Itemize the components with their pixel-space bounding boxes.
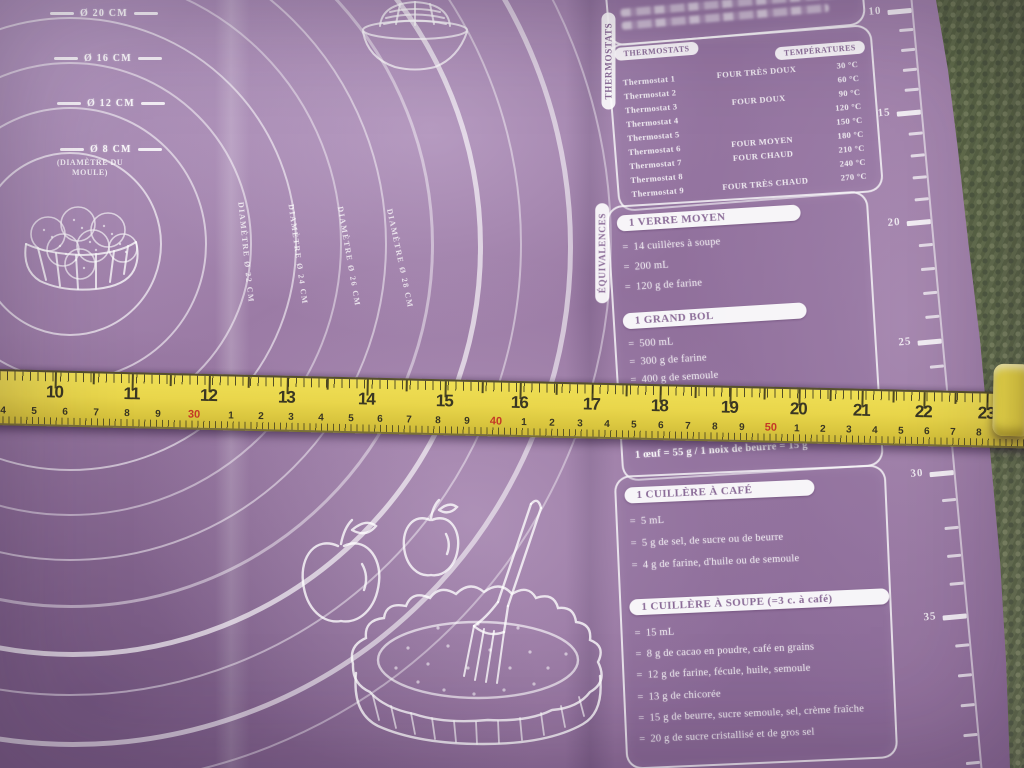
brioche-drawing — [8, 182, 158, 297]
tape-bottom-number: 7 — [406, 414, 412, 425]
list-item-text: 15 g de beurre, sucre semoule, sel, crèm… — [649, 702, 864, 726]
ruler-tick — [947, 554, 961, 558]
verre-moyen-title-pill: 1 VERRE MOYEN — [616, 204, 801, 231]
ruler-tick — [901, 48, 915, 52]
ruler-tick: 30 — [929, 470, 953, 477]
list-item: = 15 g de beurre, sucre semoule, sel, cr… — [638, 701, 888, 726]
list-item-text: 14 cuillères à soupe — [633, 235, 721, 254]
ruler-tick — [930, 364, 944, 368]
photo-scene: Ø 20 CMØ 16 CMØ 12 CMØ 8 CM (DIAMÈTRE DU… — [0, 0, 1024, 768]
list-item-text: 300 g de farine — [640, 352, 707, 370]
cuillere-cafe-title-pill: 1 CUILLÈRE À CAFÉ — [624, 479, 815, 503]
mould-diameter-note: (DIAMÈTRE DU MOULE) — [44, 158, 136, 177]
tape-cm-number: 13 — [278, 387, 295, 407]
tape-cm-number: 11 — [123, 384, 139, 404]
ruler-line — [910, 0, 984, 768]
ruler-tick — [966, 761, 980, 765]
ruler-tick: 25 — [917, 339, 941, 346]
grand-bol-title-pill: 1 GRAND BOL — [622, 302, 807, 329]
ruler-tick — [913, 175, 927, 179]
list-item-text: 200 mL — [634, 259, 669, 275]
equals-marker-icon: = — [630, 537, 637, 551]
ruler-number: 20 — [887, 216, 901, 229]
tape-bottom-number: 30 — [188, 408, 201, 420]
tape-bottom-number: 6 — [377, 414, 383, 425]
bowl-drawing — [330, 0, 500, 72]
tape-cm-tick — [626, 385, 628, 396]
equivalences-tab: ÉQUIVALENCES — [595, 203, 609, 303]
ruler-tick — [915, 197, 929, 201]
equals-marker-icon: = — [623, 261, 630, 276]
list-item-text: 8 g de cacao en poudre, café en grains — [646, 641, 814, 662]
tape-cm-tick — [248, 377, 250, 388]
list-item: = 8 g de cacao en poudre, café en grains — [635, 638, 885, 663]
tape-bottom-number: 2 — [549, 418, 555, 429]
cuillere-cafe-list: = 5 mL = 5 g de sel, de sucre ou de beur… — [629, 505, 882, 582]
list-item-text: 4 g de farine, d'huile ou de semoule — [643, 552, 800, 573]
tape-cm-tick — [892, 391, 894, 402]
list-item: = 12 g de farine, fécule, huile, semoule — [636, 659, 886, 684]
tape-bottom-number: 7 — [93, 407, 99, 418]
circle-diameter-label: Ø 8 CM — [60, 144, 162, 155]
ruler-tick — [905, 88, 919, 92]
tape-bottom-number: 6 — [924, 426, 930, 437]
equals-marker-icon: = — [634, 627, 641, 641]
tape-cm-number: 16 — [511, 393, 528, 413]
tape-cm-number: 18 — [651, 396, 668, 416]
list-item: = 13 g de chicorée — [637, 680, 887, 705]
ruler-tick — [944, 526, 958, 530]
tape-cm-tick — [93, 373, 95, 384]
grand-bol-list: = 500 mL = 300 g de farine = 400 g de se… — [628, 324, 871, 393]
tape-bottom-number: 8 — [712, 421, 718, 432]
tape-cm-tick — [764, 389, 766, 400]
tape-bottom-number: 4 — [604, 419, 610, 430]
tape-bottom-number: 5 — [31, 406, 37, 417]
tape-bottom-number: 6 — [62, 407, 68, 418]
circle-diameter-label: Ø 20 CM — [50, 8, 158, 19]
spoons-box: 1 CUILLÈRE À CAFÉ = 5 mL = 5 g de sel, d… — [614, 464, 899, 768]
equals-marker-icon: = — [622, 241, 629, 256]
tape-bottom-number: 4 — [318, 412, 324, 423]
list-item-text: 12 g de farine, fécule, huile, semoule — [647, 662, 810, 683]
tape-cm-tick — [829, 390, 831, 401]
ruler-number: 10 — [868, 5, 882, 18]
ruler-tick — [925, 315, 939, 319]
tape-cm-tick — [556, 384, 558, 395]
tape-bottom-number: 5 — [348, 413, 354, 424]
tape-bottom-number: 3 — [288, 412, 294, 423]
tape-cm-number: 10 — [46, 382, 63, 402]
tape-bottom-number: 7 — [950, 427, 956, 438]
tape-bottom-number: 40 — [490, 415, 503, 427]
tape-cm-tick — [406, 380, 408, 391]
tape-cm-number: 19 — [721, 398, 738, 418]
oven-level-label — [709, 124, 813, 132]
circle-diameter-label: Ø 12 CM — [57, 98, 165, 109]
ruler-tick — [919, 243, 933, 247]
list-item-text: 500 mL — [639, 335, 674, 351]
ruler-number: 15 — [877, 106, 891, 119]
list-item-text: 5 g de sel, de sucre ou de beurre — [642, 531, 784, 551]
list-item-text: 13 g de chicorée — [648, 687, 721, 704]
equals-marker-icon: = — [629, 356, 636, 371]
tape-bottom-number: 4 — [872, 425, 878, 436]
thermostats-tab: THERMOSTATS — [601, 13, 615, 110]
circle-diameter-label: Ø 16 CM — [54, 53, 162, 64]
tape-cm-number: 14 — [358, 389, 375, 409]
tape-cm-tick — [954, 393, 956, 404]
tape-cm-number: 15 — [436, 391, 453, 411]
ruler-tick — [921, 267, 935, 271]
equals-marker-icon: = — [638, 712, 645, 726]
cuillere-soupe-list: = 15 mL = 8 g de cacao en poudre, café e… — [634, 616, 889, 754]
ruler-tick — [955, 643, 969, 647]
cuillere-soupe-title-pill: 1 CUILLÈRE À SOUPE (=3 c. à café) — [629, 588, 889, 615]
tape-cm-tick — [482, 382, 484, 393]
list-item-text: 5 mL — [641, 514, 665, 529]
oven-level-label — [706, 82, 810, 90]
ruler-tick — [909, 131, 923, 135]
ruler-tick: 15 — [897, 110, 921, 117]
ruler-number: 35 — [923, 610, 937, 623]
tape-cm-number: 17 — [583, 394, 600, 414]
tape-bottom-number: 9 — [464, 416, 470, 427]
list-item: = 5 mL — [629, 505, 879, 530]
ruler-tick — [899, 28, 913, 32]
list-item: = 4 g de farine, d'huile ou de semoule — [631, 549, 881, 574]
tape-bottom-number: 6 — [658, 420, 664, 431]
tape-bottom-number: 8 — [435, 415, 441, 426]
tape-end-cap[interactable] — [992, 364, 1024, 437]
ruler-tick — [911, 153, 925, 157]
ruler-number: 25 — [898, 335, 912, 348]
tape-bottom-number: 50 — [765, 422, 778, 434]
tape-cm-tick — [695, 387, 697, 398]
tape-bottom-number: 9 — [739, 422, 745, 433]
ruler-number: 30 — [910, 467, 924, 480]
verre-moyen-list: = 14 cuillères à soupe = 200 mL = 120 g … — [622, 227, 865, 302]
tape-cm-number: 20 — [790, 399, 807, 419]
tape-bottom-number: 5 — [631, 420, 637, 431]
ruler-tick — [942, 498, 956, 502]
tape-cm-number: 12 — [200, 386, 217, 406]
ruler-tick — [950, 582, 964, 586]
tape-bottom-number: 5 — [898, 426, 904, 437]
list-item-text: 20 g de sucre cristallisé et de gros sel — [650, 725, 815, 746]
tape-cm-tick — [327, 379, 329, 390]
equals-marker-icon: = — [639, 733, 646, 747]
list-item: = 5 g de sel, de sucre ou de beurre — [630, 527, 880, 552]
tape-bottom-number: 4 — [0, 405, 6, 416]
ruler-tick: 20 — [907, 219, 931, 226]
ruler-tick — [963, 733, 977, 737]
tape-bottom-number: 2 — [258, 411, 264, 422]
apples-tart-drawing — [278, 468, 638, 768]
tape-bottom-number: 8 — [124, 408, 130, 419]
thermostat-box: THERMOSTATS TEMPÉRATURES Thermostat 1 FO… — [606, 24, 884, 212]
thermostat-header-left-pill: THERMOSTATS — [614, 41, 699, 61]
tape-bottom-number: 3 — [577, 418, 583, 429]
equals-marker-icon: = — [631, 559, 638, 573]
tape-cm-number: 22 — [915, 402, 932, 422]
list-item: = 20 g de sucre cristallisé et de gros s… — [639, 722, 889, 747]
tape-bottom-number: 7 — [685, 421, 691, 432]
ruler-tick — [903, 68, 917, 72]
tape-cm-tick — [170, 375, 172, 386]
ruler-tick — [923, 291, 937, 295]
tape-bottom-number: 8 — [976, 427, 982, 438]
tape-bottom-number: 1 — [794, 423, 800, 434]
list-item-text: 15 mL — [646, 626, 675, 641]
tape-bottom-number: 3 — [846, 424, 852, 435]
equals-marker-icon: = — [635, 648, 642, 662]
tape-bottom-number: 9 — [155, 409, 161, 420]
equals-marker-icon: = — [637, 691, 644, 705]
thermostat-rows: Thermostat 1 FOUR TRÈS DOUX 30 °C Thermo… — [610, 56, 881, 202]
tape-bottom-number: 1 — [521, 417, 527, 428]
ruler-tick — [961, 703, 975, 707]
list-item-text: 120 g de farine — [636, 277, 703, 295]
ruler-tick — [958, 673, 972, 677]
list-item: = 15 mL — [634, 616, 884, 641]
equals-marker-icon: = — [629, 515, 636, 529]
tape-bottom-number: 1 — [228, 410, 234, 421]
ruler-tick: 35 — [942, 613, 966, 620]
equals-marker-icon: = — [624, 281, 631, 296]
tape-cm-number: 21 — [853, 401, 870, 421]
equals-marker-icon: = — [628, 338, 635, 353]
temperature-value: 270 °C — [817, 170, 882, 185]
tape-bottom-number: 2 — [820, 424, 826, 435]
oven-level-label — [708, 110, 812, 118]
equals-marker-icon: = — [636, 669, 643, 683]
ruler-tick: 10 — [887, 8, 911, 15]
oven-level-label — [712, 166, 816, 174]
